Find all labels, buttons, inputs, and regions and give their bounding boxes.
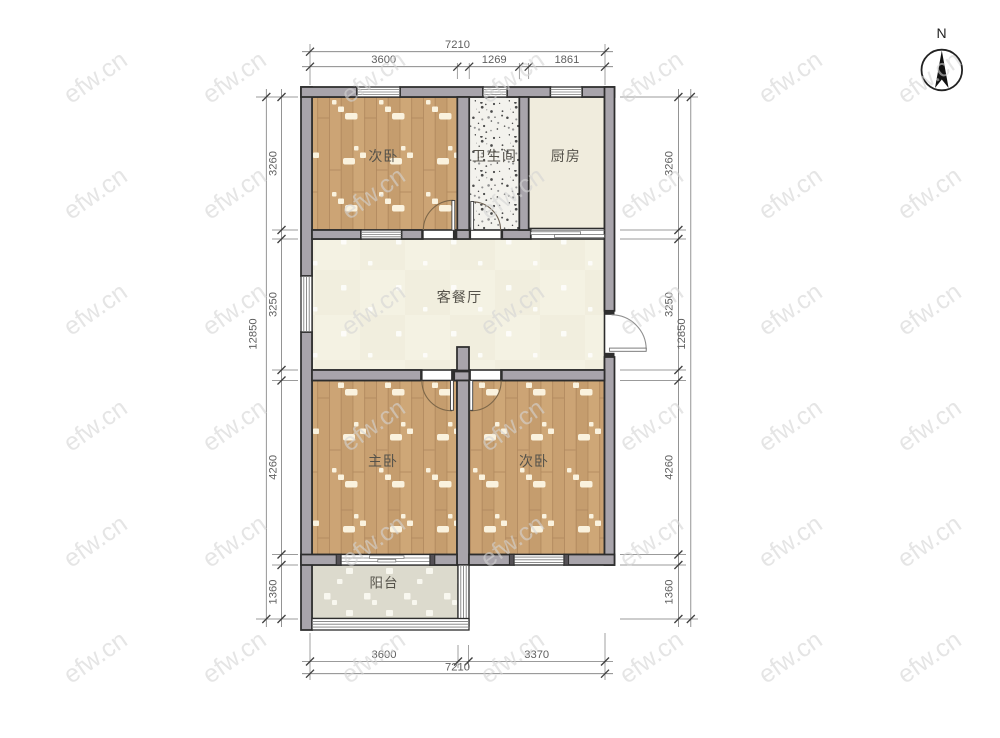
svg-text:1360: 1360 — [664, 580, 676, 605]
svg-text:1269: 1269 — [482, 54, 507, 66]
svg-text:客餐厅: 客餐厅 — [437, 289, 483, 306]
svg-text:4260: 4260 — [268, 455, 280, 480]
svg-text:1861: 1861 — [554, 54, 579, 66]
svg-text:N: N — [936, 25, 946, 41]
svg-text:4260: 4260 — [664, 455, 676, 480]
svg-text:7210: 7210 — [445, 662, 470, 674]
svg-text:卫生间: 卫生间 — [472, 148, 517, 164]
svg-text:7210: 7210 — [445, 39, 470, 51]
svg-text:厨房: 厨房 — [551, 148, 581, 164]
svg-text:次卧: 次卧 — [519, 453, 549, 469]
svg-text:3260: 3260 — [268, 151, 280, 176]
svg-text:阳台: 阳台 — [370, 576, 399, 591]
svg-text:3250: 3250 — [268, 292, 280, 317]
svg-text:12850: 12850 — [676, 318, 688, 349]
svg-text:主卧: 主卧 — [368, 453, 398, 469]
svg-text:12850: 12850 — [248, 318, 260, 349]
svg-text:1360: 1360 — [268, 580, 280, 605]
